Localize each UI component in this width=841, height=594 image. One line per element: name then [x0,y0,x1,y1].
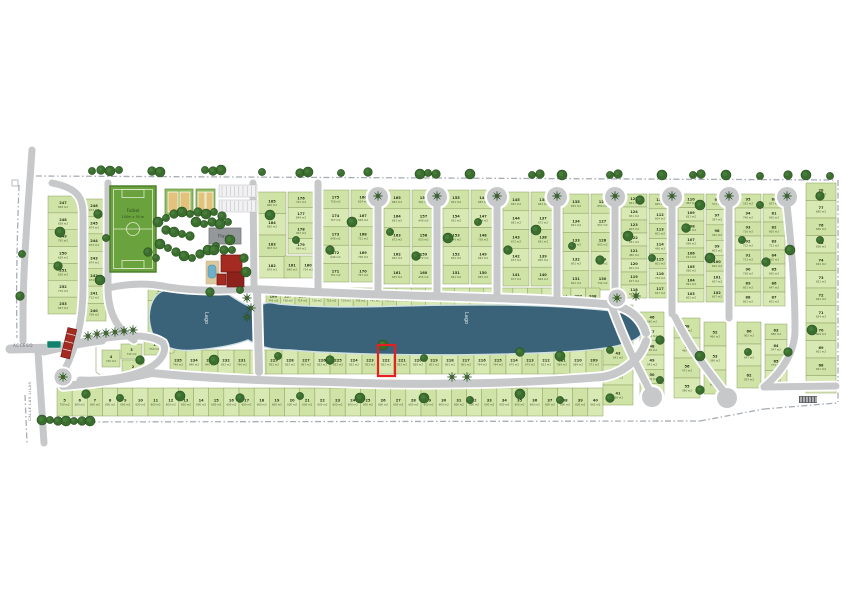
lot-area: 738 m2 [743,271,753,275]
lot-number: 145 [512,198,520,202]
lot-area: 691 m2 [538,239,548,243]
lot-number: 234 [190,359,198,363]
tree-highlight [207,289,211,293]
tree-highlight [205,247,210,252]
tree-highlight [297,393,300,396]
lot-strip-entry-lot-4: 4720 m2 [102,350,120,367]
lot-number: 92 [745,240,751,244]
lot-area: 601 m2 [743,285,753,289]
tree-highlight [187,233,191,237]
lot-number: 170 [359,269,367,273]
lot-area: 658 m2 [58,205,68,209]
lot-number: 19 [274,399,280,403]
lot-area: 794 m2 [493,362,503,366]
lot-area: 397 m2 [712,218,722,222]
lot-area: 602 m2 [712,264,722,268]
lot-area: 601 m2 [769,299,779,303]
tree-highlight [739,237,742,240]
lot-area: 984 m2 [296,247,306,251]
palm-trunk [62,376,64,378]
lot-number: 216 [478,359,486,363]
lot-area: 600 m2 [272,402,282,406]
entrance-sign[interactable] [47,341,61,348]
lot-area: 758 m2 [331,200,341,204]
lot-area: 622 m2 [541,362,551,366]
lot-number: 225 [334,359,342,363]
lot-number: 153 [452,234,460,238]
lot-area: 734 m2 [655,276,665,280]
lot-number: 174 [332,214,340,218]
tree-highlight [237,287,240,290]
lot-area: 660 m2 [267,203,277,207]
tree-highlight [533,227,538,232]
tree-highlight [615,171,619,175]
tree-highlight [83,391,87,395]
lot-number: 34 [502,399,508,403]
lot-area: 600 m2 [135,402,145,406]
lot-area: 566 m2 [686,269,696,273]
lot-number: 167 [359,214,367,218]
lot-number: 209 [590,359,598,363]
lot-number: 119 [630,275,638,279]
lot-area: 852 m2 [365,362,375,366]
palm-trunk [246,297,248,299]
palm-trunk [123,330,125,332]
tree-highlight [657,377,660,380]
lot-number: 104 [687,278,695,282]
lot-number: 117 [656,287,664,291]
tree-highlight [649,255,652,258]
lot-area: 691 m2 [392,219,402,223]
tree-highlight [657,337,661,341]
lot-area: 758 m2 [358,255,368,259]
tree-highlight [683,225,687,229]
lot-area: 683 m2 [392,200,402,204]
lot-number: 149 [479,252,487,256]
lot-number: 98 [714,229,720,233]
tree-highlight [219,213,223,217]
lot-number: 173 [332,233,340,237]
lot-number: 102 [713,291,721,295]
lot-number: 22 [320,399,326,403]
tree-highlight [149,168,153,172]
tree-highlight [365,169,369,173]
lot-area: 561 m2 [451,219,461,223]
lot-number: 179 [297,243,305,247]
lot-number: 99 [714,245,720,249]
lot-area: 657 m2 [598,223,608,227]
lot-area: 667 m2 [58,306,68,310]
lot-area: 396 m2 [682,388,692,392]
lot-number: 74 [818,258,824,262]
lot-area: 605 m2 [769,215,779,219]
tree-highlight [293,237,296,240]
site-plan-map: 247658 m2248638 m2249792 m2250639 m22516… [0,0,841,594]
lot-strip-block-a-south: 181640 m2180714 m2 [284,256,316,278]
tree-highlight [202,167,205,170]
lot-number: 213 [526,359,534,363]
lot-area: 480 m2 [629,253,639,257]
lot-number: 110 [687,197,695,201]
lot-area: 600 m2 [530,402,540,406]
lot-area: 801 m2 [461,362,471,366]
lot-area: 680 m2 [816,210,826,214]
lot-area: 561 m2 [686,282,696,286]
tree-highlight [55,263,59,267]
lot-number: 90 [745,268,751,272]
lot-area: 460 m2 [710,334,720,338]
lot-strip-block-i-west: 95532 m294748 m293716 m292712 m291713 m2… [735,194,761,306]
lot-area: 867 m2 [301,362,311,366]
palm-trunk [377,195,379,197]
lake-label: Lago [203,312,209,324]
lot-number: 169 [359,251,367,255]
lot-area: 589 m2 [557,362,567,366]
lot-number: 60 [746,330,752,334]
lot-number: 112 [656,213,664,217]
tree-highlight [157,241,162,246]
lot-area: 532 m2 [743,201,753,205]
swimming-pool[interactable] [208,265,216,278]
tree-highlight [557,397,560,400]
lot-number: 162 [393,252,401,256]
lot-number: 253 [59,302,67,306]
lot-area: 675 m2 [525,362,535,366]
tree-highlight [827,173,830,176]
lot-strip-block-f-west: 135655 m2134691 m2133680 m2132601 m21316… [563,194,589,290]
lot-area: 589 m2 [573,362,583,366]
lot-number: 27 [396,399,402,403]
lot-area: 600 m2 [90,402,100,406]
lot-area: 852 m2 [349,362,359,366]
lot-number: 91 [745,254,751,258]
lot-area: 604 m2 [655,217,665,221]
tree-highlight [607,395,611,399]
lot-area: 748 m2 [743,215,753,219]
lot-number: 107 [687,238,695,242]
lot-number: 12 [168,399,174,403]
clubhouse-building[interactable] [221,255,242,272]
tree-highlight [597,257,601,261]
lot-area: 858 m2 [413,362,423,366]
lot-area: 691 m2 [571,223,581,227]
lot-number: 131 [572,277,580,281]
lot-number: 240 [90,309,98,313]
lot-number: 36 [532,399,538,403]
lot-area: 609 m2 [816,332,826,336]
lot-area: 601 m2 [816,350,826,354]
tree-highlight [757,202,760,205]
lot-area: 600 m2 [151,402,161,406]
tree-highlight [217,221,222,226]
tree-highlight [637,197,641,201]
lot-number: 152 [452,252,460,256]
tree-highlight [55,418,59,422]
lot-area: 801 m2 [445,362,455,366]
tree-highlight [413,253,417,257]
tree-highlight [505,247,509,251]
lot-number: 215 [494,359,502,363]
lot-area: 601 m2 [743,299,753,303]
palm-trunk [114,331,116,333]
lot-number: 163 [393,234,401,238]
lot-number: 184 [268,221,276,225]
lot-area: 601 m2 [655,232,665,236]
lot-number: 226 [318,359,326,363]
tree-highlight [690,172,693,175]
lot-number: 65 [773,359,779,363]
tree-highlight [425,170,428,173]
tree-highlight [517,391,522,396]
lot-area: 852 m2 [333,362,343,366]
lot-area: 601 m2 [571,281,581,285]
tree-highlight [467,397,470,400]
tree-highlight [225,219,228,222]
lot-number: 69 [818,346,824,350]
lot-area: 655 m2 [571,204,581,208]
lot-number: 121 [630,249,638,253]
lot-number: 64 [773,344,779,348]
lot-area: 566 m2 [613,395,623,399]
lot-area: 656 m2 [816,227,826,231]
lot-number: 16 [229,399,235,403]
lot-area: 745 m2 [268,298,278,302]
lot-number: 68 [818,363,824,367]
tree-highlight [187,211,190,214]
lot-number: 118 [630,288,638,292]
lot-area: 600 m2 [211,402,221,406]
lot-number: 147 [479,215,487,219]
lot-number: 49 [649,359,655,363]
lot-area: 601 m2 [655,261,665,265]
lot-number: 10 [138,399,144,403]
lot-number: 113 [656,228,664,232]
tree-highlight [259,169,262,172]
lot-number: 210 [574,359,582,363]
tree-highlight [557,353,562,358]
lot-strip-block-g-west: 125651 m2124651 m2123603 m2122651 m21214… [621,194,647,298]
lot-area: 600 m2 [120,402,130,406]
field-size-label: 100m x 50 m [122,215,145,219]
tree-highlight [157,169,162,174]
tree-highlight [625,233,630,238]
lot-number: 93 [745,226,751,230]
lot-number: 180 [304,264,312,268]
lot-area: 673 m2 [511,277,521,281]
lot-area: 639 m2 [58,255,68,259]
lot-area: 680 m2 [771,332,781,336]
lot-area: 647 m2 [744,355,754,359]
lot-number: 56 [684,365,690,369]
lot-area: 648 m2 [331,236,341,240]
palm-trunk [496,195,498,197]
lot-number: 159 [420,252,428,256]
lot-area: 952 m2 [296,231,306,235]
tree-highlight [177,393,182,398]
lot-number: 217 [462,359,470,363]
lot-area: 603 m2 [629,227,639,231]
lot-strip-col-west-outer: 247658 m2248638 m2249792 m2250639 m22516… [48,196,78,314]
lot-area: 779 m2 [58,289,68,293]
lot-area: 641 m2 [613,355,623,359]
culdesac-bulb [717,388,737,408]
lot-area: 651 m2 [629,214,639,218]
tree-highlight [171,229,176,234]
lot-area: 792 m2 [58,239,68,243]
lot-area: 601 m2 [686,296,696,300]
lot-area: 600 m2 [378,402,388,406]
lot-area: 600 m2 [515,402,525,406]
tree-highlight [697,387,701,391]
lot-number: 94 [745,212,751,216]
lot-area: 646 m2 [331,255,341,259]
lot-area: 605 m2 [769,229,779,233]
lot-area: 600 m2 [242,402,252,406]
lot-area: 902 m2 [744,333,754,337]
clubhouse-building[interactable] [217,274,226,285]
tree-highlight [211,357,216,362]
lot-area: 721 m2 [769,243,779,247]
lot-area: 641 m2 [816,297,826,301]
lot-area: 681 m2 [511,221,521,225]
lot-number: 20 [290,399,296,403]
tree-highlight [163,227,167,231]
lot-number: 37 [547,399,553,403]
lot-area: 550 m2 [150,347,160,351]
tree-highlight [173,249,177,253]
lot-number: 11 [153,399,159,403]
lot-area: 655 m2 [419,237,429,241]
tree-highlight [445,235,450,240]
lot-area: 601 m2 [816,367,826,371]
lot-area: 600 m2 [287,402,297,406]
tree-highlight [193,219,198,224]
lot-number: 134 [572,219,580,223]
lot-number: 218 [446,359,454,363]
tree-highlight [203,211,208,216]
lot-number: 165 [393,196,401,200]
palm-trunk [556,195,558,197]
lot-area: 600 m2 [439,402,449,406]
lot-area: 652 m2 [478,256,488,260]
lot-number: 43 [615,352,621,356]
lot-number: 97 [714,214,720,218]
lot-number: 28 [411,399,417,403]
lot-area: 658 m2 [58,272,68,276]
lot-number: 164 [393,215,401,219]
tree-highlight [537,171,541,175]
tennis-court[interactable] [168,192,178,212]
lot-area: 600 m2 [575,402,585,406]
lot-number: 41 [615,392,621,396]
tree-highlight [417,171,422,176]
tree-highlight [117,395,120,398]
lot-strip-col-east-edge: 78801 m277680 m276656 m275656 m274654 m2… [806,183,836,393]
tree-highlight [763,259,767,263]
tree-highlight [195,209,199,213]
lot-area: 766 m2 [237,362,247,366]
lot-number: 223 [366,359,374,363]
tree-highlight [559,172,564,177]
lot-area: 600 m2 [333,402,343,406]
lot-number: 140 [539,273,547,277]
lot-number: 84 [771,254,777,258]
lot-number: 168 [359,233,367,237]
tree-highlight [327,247,331,251]
lot-number: 177 [297,212,305,216]
tree-highlight [569,243,572,246]
lot-area: 713 m2 [743,257,753,261]
lot-number: 72 [818,293,824,297]
lot-number: 183 [268,242,276,246]
lot-area: 600 m2 [257,402,267,406]
lot-area: 674 m2 [89,226,99,230]
lot-area: 600 m2 [317,402,327,406]
lot-area: 541 m2 [686,255,696,259]
lot-number: 232 [222,359,230,363]
tree-highlight [19,251,22,254]
lot-number: 114 [656,243,664,247]
lot-area: 694 m2 [538,277,548,281]
tree-highlight [89,168,92,171]
lot-number: 77 [818,206,824,210]
lot-area: 674 m2 [89,260,99,264]
lot-number: 30 [441,399,447,403]
lot-number: 82 [771,226,777,230]
lot-area: 801 m2 [429,362,439,366]
lot-area: 721 m2 [358,236,368,240]
tree-highlight [71,418,74,421]
tree-highlight [327,357,331,361]
lot-area: 745 m2 [127,352,137,356]
palm-trunk [132,329,134,331]
lot-area: 716 m2 [326,298,336,302]
lot-number: 23 [335,399,341,403]
tree-highlight [349,219,354,224]
lot-area: 647 m2 [769,285,779,289]
lot-area: 849 m2 [296,216,306,220]
tree-highlight [17,293,21,297]
lot-area: 600 m2 [75,402,85,406]
lot-number: 171 [332,269,340,273]
lake-label: Lago [463,312,469,324]
lot-number: 46 [649,316,655,320]
lot-area: 852 m2 [381,362,391,366]
lot-number: 157 [420,215,428,219]
palm-trunk [786,195,788,197]
lot-number: 85 [771,268,777,272]
lot-area: 690 m2 [647,320,657,324]
lot-area: 656 m2 [816,245,826,249]
lot-number: 138 [539,236,547,240]
lot-area: 541 m2 [647,363,657,367]
lot-strip-block-e-west: 145652 m2144681 m2143672 m2142673 m21416… [503,192,529,286]
lot-number: 128 [599,239,607,243]
lot-number: 222 [382,359,390,363]
tree-highlight [723,172,728,177]
palm-trunk [728,195,730,197]
lot-area: 627 m2 [655,291,665,295]
lot-area: 741 m2 [296,200,306,204]
tree-highlight [145,249,149,253]
tree-highlight [357,395,362,400]
lot-number: 227 [302,359,310,363]
lot-area: 600 m2 [226,402,236,406]
lot-area: 840 m2 [189,362,199,366]
lot-area: 655 m2 [392,275,402,279]
lot-number: 25 [365,399,371,403]
tree-highlight [607,172,610,175]
